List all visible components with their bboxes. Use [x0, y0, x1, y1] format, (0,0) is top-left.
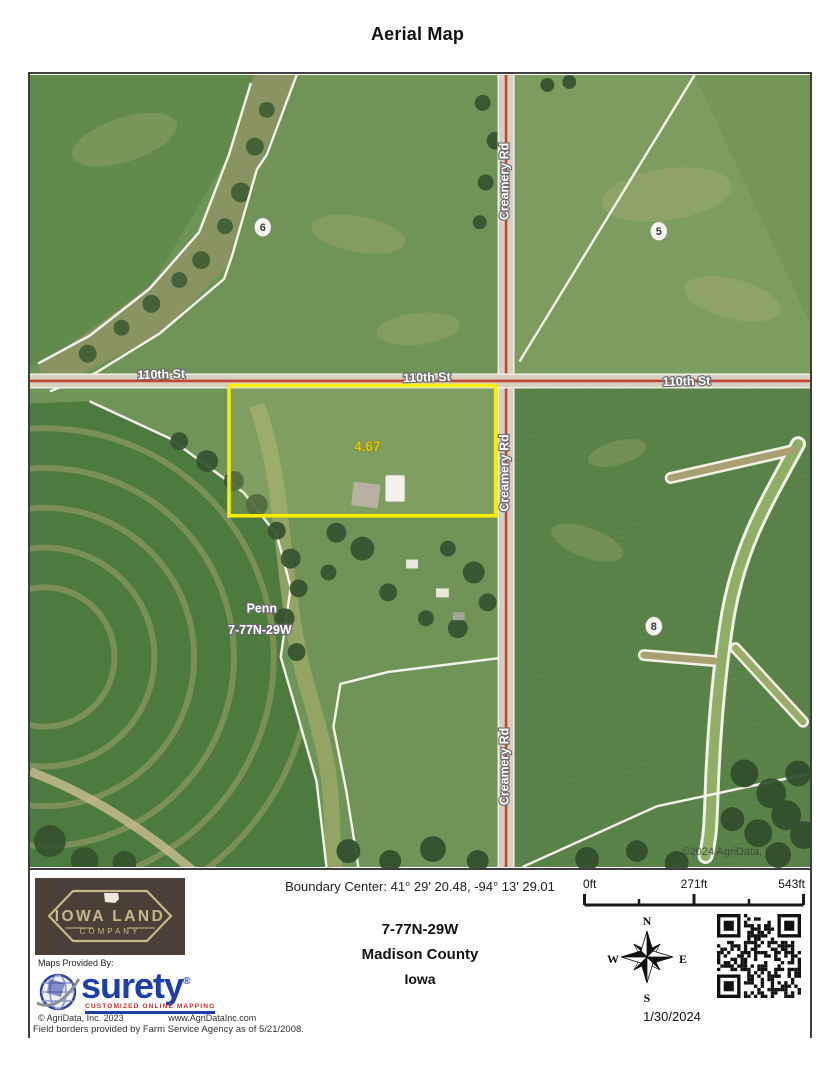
- township-name: Penn: [247, 601, 277, 615]
- svg-text:8: 8: [651, 621, 657, 633]
- field-borders-disclaimer: Field borders provided by Farm Service A…: [33, 1024, 304, 1035]
- scale-bar: 0ft 271ft 543ft: [583, 877, 805, 907]
- location-block: 7-77N-29W Madison County Iowa: [270, 917, 570, 992]
- svg-text:5: 5: [656, 226, 662, 238]
- map-copyright: ©2024 AgriData, Inc.: [682, 846, 783, 858]
- surety-wordmark: surety: [81, 965, 183, 1006]
- scale-end: 543ft: [778, 877, 805, 891]
- logo-line1: IOWA LAND: [55, 908, 166, 925]
- field-number-6: 6: [254, 218, 271, 237]
- location-trs: 7-77N-29W: [270, 917, 570, 942]
- road-label-creamery-2: Creamery Rd: [498, 434, 512, 511]
- map-footer: IOWA LAND COMPANY Maps Provided By:: [30, 868, 810, 1038]
- surety-globe-icon: [35, 969, 81, 1015]
- compass-star-icon: [620, 930, 674, 984]
- road-label-110th-3: 110th St: [663, 374, 711, 389]
- page-title: Aerial Map: [0, 24, 835, 45]
- scale-bar-rule: [583, 893, 805, 907]
- compass-north-label: N: [607, 914, 687, 929]
- aerial-map-page: Aerial Map: [0, 0, 835, 1080]
- iowa-state-icon: [104, 893, 119, 903]
- road-label-creamery-1: Creamery Rd: [498, 143, 512, 220]
- compass-east-label: E: [679, 952, 687, 967]
- map-frame: 110th St 110th St 110th St Creamery Rd C…: [28, 72, 812, 1038]
- agridata-website: www.AgriDataInc.com: [168, 1013, 256, 1023]
- agridata-copyright: © AgriData, Inc. 2023: [38, 1013, 124, 1023]
- location-state: Iowa: [270, 967, 570, 992]
- svg-text:6: 6: [260, 222, 266, 234]
- map-date: 1/30/2024: [612, 1009, 732, 1024]
- logo-line2: COMPANY: [80, 927, 141, 936]
- compass-west-label: W: [607, 952, 619, 967]
- field-number-5: 5: [650, 222, 667, 241]
- agridata-credit: © AgriData, Inc. 2023 www.AgriDataInc.co…: [38, 1013, 368, 1023]
- surety-logo: surety® CUSTOMIZED ONLINE MAPPING: [35, 969, 215, 1015]
- road-label-110th-2: 110th St: [403, 370, 451, 385]
- aerial-map: 110th St 110th St 110th St Creamery Rd C…: [30, 74, 810, 868]
- scale-mid: 271ft: [583, 877, 805, 891]
- compass-rose: N W E S: [607, 914, 687, 1006]
- road-label-110th-1: 110th St: [137, 367, 185, 382]
- parcel-acreage: 4.67: [354, 439, 380, 454]
- road-label-creamery-3: Creamery Rd: [498, 728, 512, 805]
- field-number-8: 8: [645, 617, 662, 636]
- qr-code: [717, 914, 801, 998]
- registered-mark: ®: [183, 976, 190, 987]
- location-county: Madison County: [270, 942, 570, 967]
- township-trs: 7-77N-29W: [228, 623, 292, 637]
- compass-south-label: S: [607, 991, 687, 1006]
